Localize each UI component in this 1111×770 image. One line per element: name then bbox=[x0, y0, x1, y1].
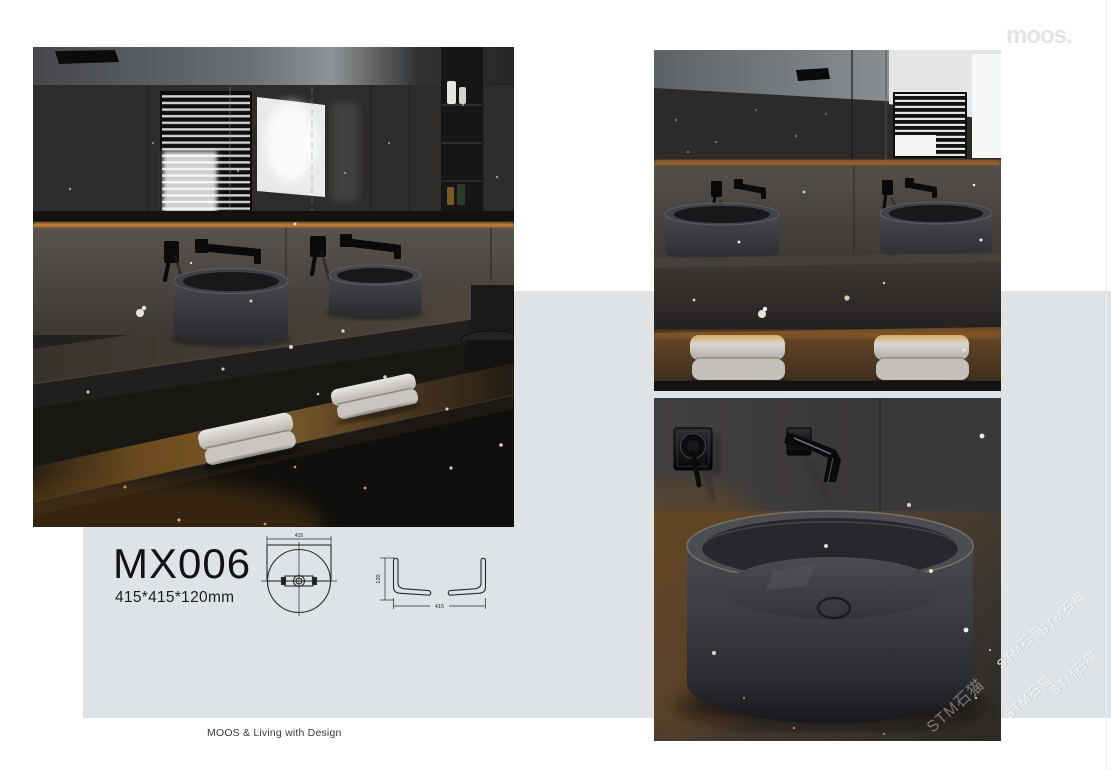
hero-image-art bbox=[33, 47, 514, 527]
round-basin bbox=[678, 511, 982, 728]
secondary-image-art bbox=[654, 50, 1001, 391]
side-view-height-label: 120 bbox=[376, 574, 382, 583]
brand-logo: moos. bbox=[1006, 22, 1072, 50]
catalog-page: moos. bbox=[0, 0, 1111, 770]
mirror-top bbox=[654, 50, 1001, 162]
basin-left bbox=[171, 269, 291, 348]
hero-image bbox=[33, 47, 514, 527]
top-view-width-label: 415 bbox=[295, 533, 304, 539]
basin-right bbox=[325, 265, 425, 320]
technical-drawings: 415 120 415 bbox=[258, 532, 498, 620]
drawing-side-view bbox=[380, 558, 486, 609]
page-edge-line bbox=[1106, 0, 1107, 770]
towel-stack-left bbox=[687, 335, 791, 387]
bottle bbox=[447, 81, 456, 104]
towel-stack-right bbox=[872, 335, 972, 387]
ceiling-vent bbox=[55, 50, 119, 64]
product-code: MX006 bbox=[113, 543, 251, 585]
ceiling-vent bbox=[796, 68, 830, 81]
detail-image bbox=[654, 398, 1001, 741]
footer-tagline: MOOS & Living with Design bbox=[207, 727, 342, 739]
basin-left bbox=[665, 203, 779, 262]
detail-image-art bbox=[654, 398, 1001, 741]
secondary-image bbox=[654, 50, 1001, 391]
shelf-unit bbox=[441, 47, 483, 219]
product-dimensions: 415*415*120mm bbox=[115, 589, 234, 607]
drawing-top-view bbox=[261, 536, 337, 616]
basin-right bbox=[880, 202, 992, 261]
side-view-width-label: 415 bbox=[435, 604, 444, 610]
